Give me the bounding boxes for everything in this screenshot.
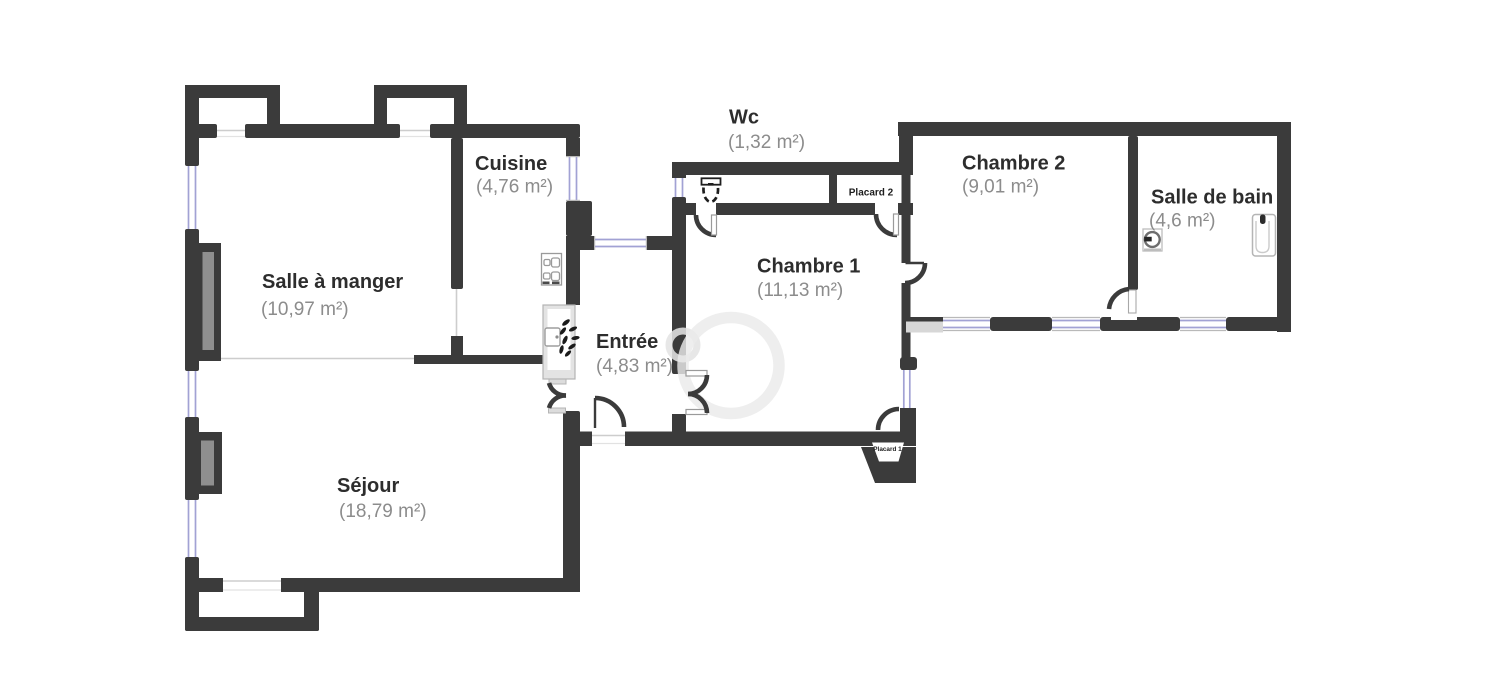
svg-text:Wc: Wc (729, 107, 759, 129)
svg-text:(11,13 m²): (11,13 m²) (757, 280, 843, 301)
svg-text:(10,97 m²): (10,97 m²) (261, 299, 349, 320)
svg-text:Cuisine: Cuisine (475, 153, 547, 175)
svg-text:Chambre 1: Chambre 1 (757, 256, 860, 278)
svg-text:(9,01 m²): (9,01 m²) (962, 177, 1039, 198)
svg-text:Séjour: Séjour (337, 475, 399, 497)
svg-text:Entrée: Entrée (596, 331, 658, 353)
svg-text:(4,83 m²): (4,83 m²) (596, 356, 673, 377)
svg-text:(1,32 m²): (1,32 m²) (728, 132, 805, 153)
svg-text:Chambre 2: Chambre 2 (962, 153, 1065, 175)
svg-text:Placard 2: Placard 2 (849, 188, 894, 199)
svg-text:Salle de bain: Salle de bain (1151, 187, 1273, 209)
svg-text:(18,79 m²): (18,79 m²) (339, 501, 427, 522)
svg-text:Salle à manger: Salle à manger (262, 271, 403, 293)
svg-text:Placard 1: Placard 1 (873, 446, 902, 453)
svg-text:(4,6 m²): (4,6 m²) (1149, 211, 1216, 232)
svg-text:(4,76 m²): (4,76 m²) (476, 177, 553, 198)
